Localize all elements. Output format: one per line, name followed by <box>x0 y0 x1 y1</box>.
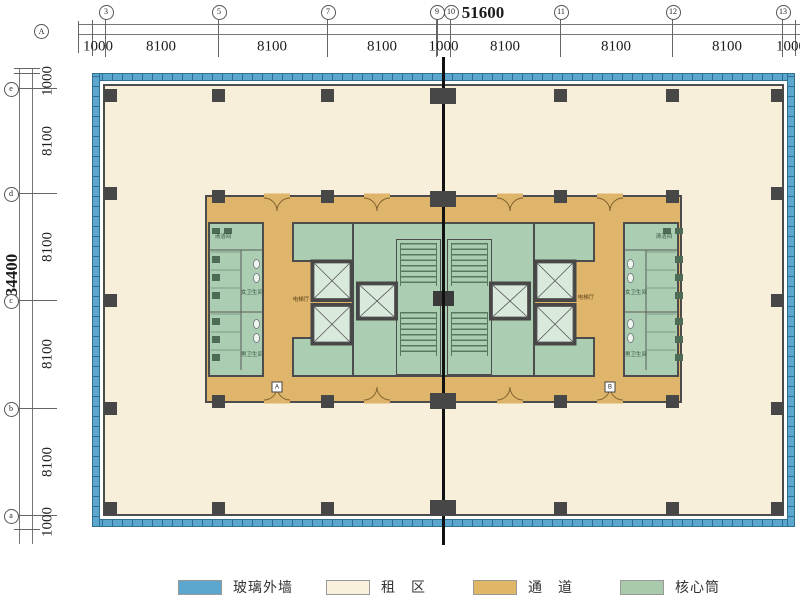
grid-line-stem <box>327 18 328 57</box>
structural-column <box>771 187 784 200</box>
left-dim-terminus <box>14 68 40 69</box>
machine-room-left-top <box>292 222 354 262</box>
left-dim-tick <box>14 529 40 530</box>
stair-flight <box>451 243 488 286</box>
legend-item: 玻璃外墙 <box>178 576 293 598</box>
structural-column-large <box>430 393 456 409</box>
structural-column <box>321 502 334 515</box>
structural-column-large <box>430 88 456 104</box>
detail-marker-a: A <box>272 382 283 393</box>
structural-column <box>666 395 679 408</box>
left-dim-segment: 1000 <box>40 507 57 537</box>
machine-room-right-bottom <box>533 337 595 377</box>
elevator-hall-label-right: 电梯厅 <box>578 293 595 301</box>
grid-bubble-top: 10 <box>444 5 459 20</box>
floor-plan-drawing: 51600 34400 A 电梯厅 电梯厅 女卫生间 男卫生间 女卫生间 男卫生… <box>0 0 800 600</box>
grid-bubble-top: 3 <box>99 5 114 20</box>
structural-column <box>104 294 117 307</box>
womens-toilet-label-right: 女卫生间 <box>625 288 647 296</box>
legend-item: 核心筒 <box>620 576 720 598</box>
machine-room-left-bottom <box>292 337 354 377</box>
legend-label: 核心筒 <box>675 577 720 597</box>
structural-column <box>212 89 225 102</box>
top-dim-segment: 8100 <box>601 39 631 56</box>
legend-item: 通 道 <box>473 576 573 598</box>
structural-column <box>104 402 117 415</box>
left-dim-tick <box>14 73 40 74</box>
top-dim-segment: 1000 <box>429 39 459 56</box>
legend-item: 租 区 <box>326 576 426 598</box>
structural-column <box>212 190 225 203</box>
elevator-hall-label-left: 电梯厅 <box>293 295 310 303</box>
structural-column <box>771 89 784 102</box>
legend-label: 租 区 <box>381 577 426 597</box>
grid-bubble-top: 5 <box>212 5 227 20</box>
section-cut-line <box>442 57 445 545</box>
left-dim-line-1 <box>19 68 20 544</box>
grid-bubble-left: d <box>4 187 19 202</box>
top-dim-line-2 <box>78 34 800 35</box>
structural-column <box>666 190 679 203</box>
structural-column <box>554 395 567 408</box>
grid-bubble-top: 12 <box>666 5 681 20</box>
structural-column <box>212 502 225 515</box>
top-dim-line-1 <box>78 24 800 25</box>
structural-column <box>666 89 679 102</box>
cleaning-room-label-left: 清洁间 <box>215 232 232 240</box>
stair-flight <box>400 312 437 356</box>
left-dim-segment: 1000 <box>40 66 57 96</box>
grid-bubble-left: b <box>4 402 19 417</box>
grid-line-stem <box>560 18 561 57</box>
top-total-dimension: 51600 <box>462 3 505 23</box>
grid-line-stem <box>218 18 219 57</box>
legend-label: 通 道 <box>528 577 573 597</box>
top-dim-segment: 8100 <box>146 39 176 56</box>
structural-column <box>554 89 567 102</box>
machine-room-right-top <box>533 222 595 262</box>
structural-column <box>321 190 334 203</box>
structural-column <box>666 502 679 515</box>
structural-column <box>771 402 784 415</box>
legend-swatch <box>620 580 664 595</box>
grid-line-stem <box>672 18 673 57</box>
top-dim-segment: 8100 <box>367 39 397 56</box>
grid-bubble-left: e <box>4 82 19 97</box>
grid-bubble-top: 11 <box>554 5 569 20</box>
legend-swatch <box>326 580 370 595</box>
structural-column <box>321 89 334 102</box>
structural-column <box>212 395 225 408</box>
structural-column <box>104 89 117 102</box>
grid-bubble-top: 9 <box>430 5 445 20</box>
structural-column <box>771 294 784 307</box>
top-dim-segment: 1000 <box>83 39 113 56</box>
legend-swatch <box>178 580 222 595</box>
structural-column-large <box>430 500 456 516</box>
legend-swatch <box>473 580 517 595</box>
womens-toilet-label-left: 女卫生间 <box>241 288 263 296</box>
grid-bubble-left: c <box>4 294 19 309</box>
top-dim-terminus <box>78 21 79 53</box>
corner-axis-bubble: A <box>34 24 49 39</box>
grid-line-stem <box>17 300 57 301</box>
glass-wall-right <box>787 73 795 527</box>
top-dim-segment: 1000 <box>776 39 800 56</box>
left-dim-segment: 8100 <box>40 126 57 156</box>
grid-bubble-left: a <box>4 509 19 524</box>
detail-marker-b: B <box>605 382 616 393</box>
grid-line-stem <box>17 193 57 194</box>
top-dim-segment: 8100 <box>712 39 742 56</box>
grid-bubble-top: 13 <box>776 5 791 20</box>
left-dim-line-2 <box>32 68 33 544</box>
structural-column <box>104 502 117 515</box>
left-dim-segment: 8100 <box>40 339 57 369</box>
legend-label: 玻璃外墙 <box>233 577 293 597</box>
mens-toilet-label-left: 男卫生间 <box>241 350 263 358</box>
top-dim-segment: 8100 <box>490 39 520 56</box>
cleaning-room-label-right: 清洁间 <box>656 232 673 240</box>
mens-toilet-label-right: 男卫生间 <box>625 350 647 358</box>
top-dim-segment: 8100 <box>257 39 287 56</box>
structural-column <box>321 395 334 408</box>
legend: 玻璃外墙租 区通 道核心筒 <box>0 576 800 600</box>
stair-flight <box>451 312 488 356</box>
left-dim-segment: 8100 <box>40 232 57 262</box>
structural-column <box>554 190 567 203</box>
grid-line-stem <box>17 408 57 409</box>
structural-column <box>104 187 117 200</box>
grid-bubble-top: 7 <box>321 5 336 20</box>
stair-flight <box>400 243 437 286</box>
structural-column <box>771 502 784 515</box>
structural-column-large <box>430 191 456 207</box>
structural-column <box>554 502 567 515</box>
glass-wall-left <box>92 73 100 527</box>
left-dim-segment: 8100 <box>40 447 57 477</box>
